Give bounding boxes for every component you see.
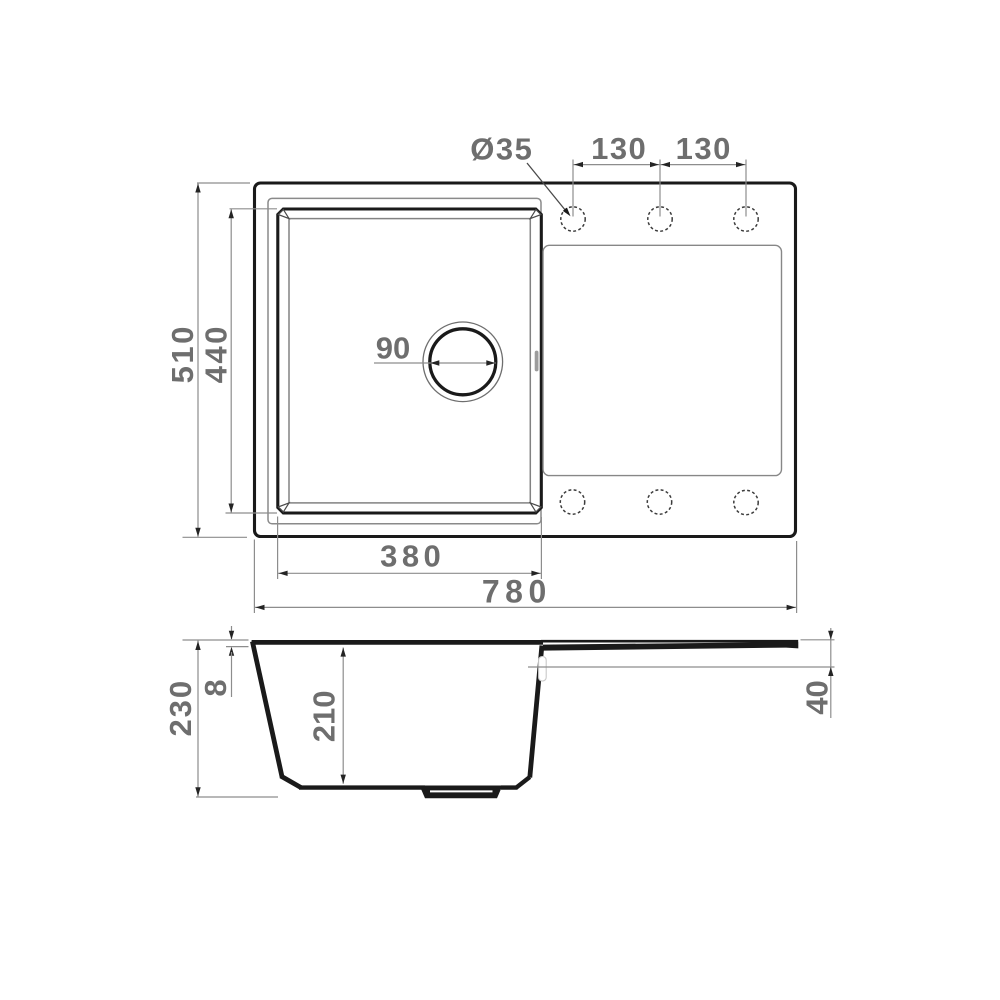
svg-text:230: 230: [163, 679, 198, 737]
svg-text:440: 440: [199, 324, 234, 383]
svg-text:130: 130: [591, 131, 647, 166]
svg-text:Ø35: Ø35: [470, 132, 533, 167]
svg-text:780: 780: [482, 573, 552, 609]
svg-text:130: 130: [676, 131, 732, 166]
svg-text:40: 40: [800, 680, 835, 714]
svg-text:510: 510: [165, 324, 200, 383]
svg-text:380: 380: [380, 539, 445, 574]
svg-text:8: 8: [198, 679, 233, 696]
svg-text:90: 90: [376, 331, 410, 366]
svg-text:210: 210: [307, 691, 342, 743]
